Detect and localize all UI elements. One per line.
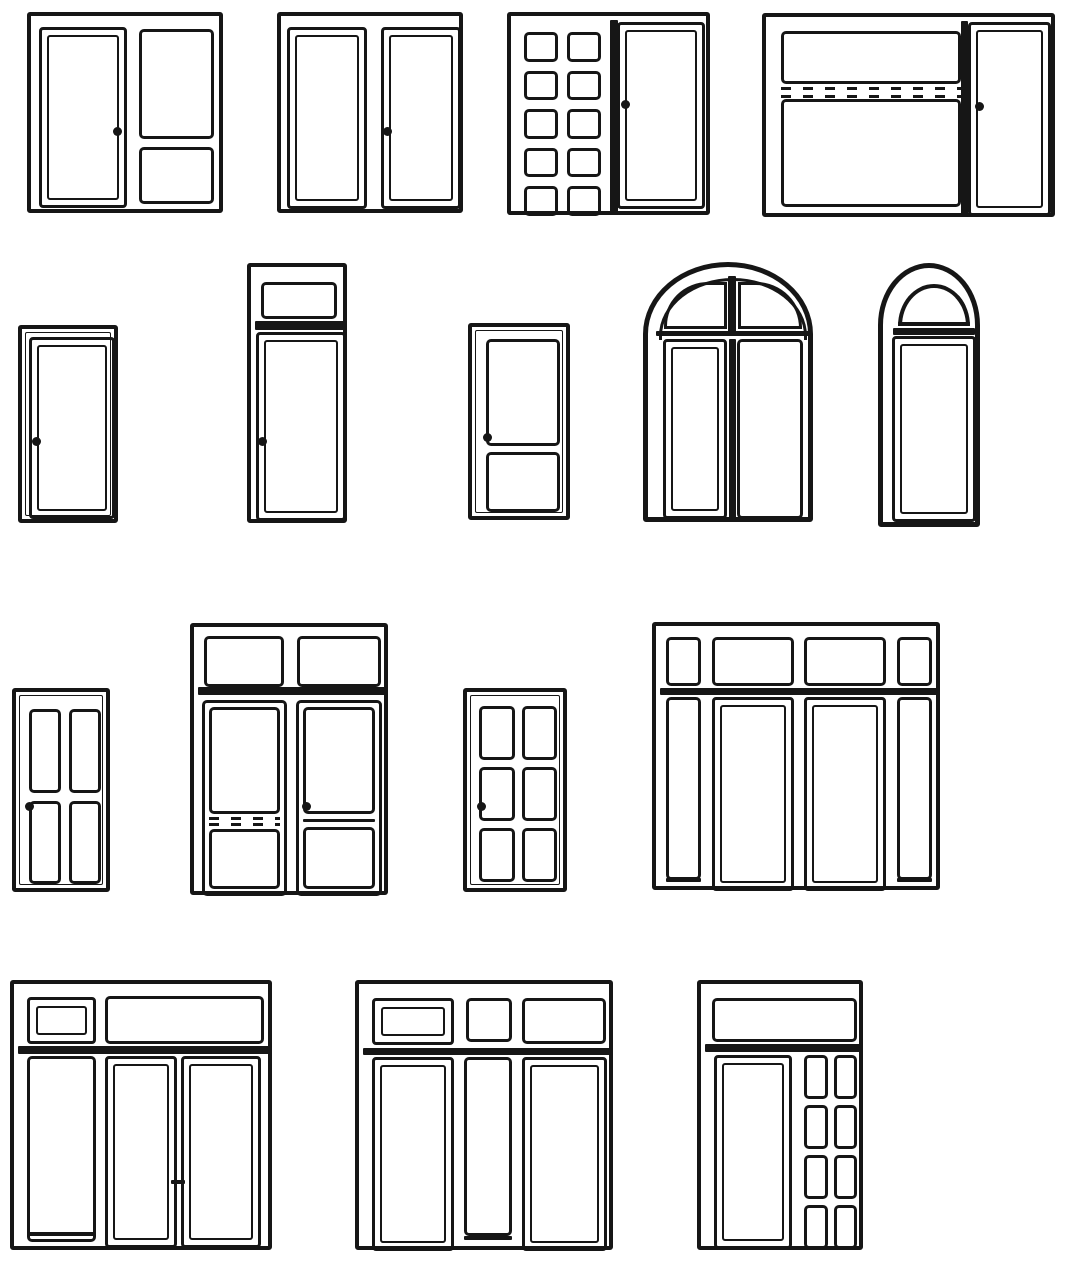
arched-window-with-fanlight-fanlight bbox=[898, 284, 970, 326]
wide-window-with-vent-strip-and-casement-vent-hatch-row bbox=[781, 95, 961, 98]
double-casement-sash bbox=[381, 27, 461, 209]
double-door-with-sidelight-and-transom-frame-bar bbox=[27, 1232, 96, 1236]
double-door-with-transom-and-vent-frame-bar bbox=[303, 819, 375, 822]
four-pane-window-pane-grid bbox=[29, 709, 101, 884]
six-pane-door bbox=[463, 688, 567, 892]
double-casement-sash-glass-pane bbox=[295, 35, 359, 201]
six-pane-door-small-pane bbox=[522, 828, 558, 882]
casement-with-transom-handle-dot bbox=[258, 437, 267, 446]
four-pane-window-small-pane bbox=[29, 801, 61, 885]
multipane-grid-and-casement bbox=[507, 12, 710, 215]
arched-double-window-frame-bar bbox=[656, 331, 810, 336]
four-pane-window-small-pane bbox=[69, 801, 101, 885]
double-door-with-transom-and-vent-vent-hatch-row bbox=[209, 823, 280, 826]
four-pane-window bbox=[12, 688, 110, 892]
door-sidelight-door-with-transoms-glass-pane bbox=[466, 998, 512, 1042]
window-wall-with-transoms-and-sidelights-sash-glass-pane bbox=[720, 705, 786, 883]
wide-window-with-vent-strip-and-casement-sash bbox=[968, 22, 1051, 216]
window-wall-with-transoms-and-sidelights-glass-pane bbox=[666, 697, 701, 880]
wide-window-with-vent-strip-and-casement bbox=[762, 13, 1055, 217]
double-door-with-transom-and-vent-glass-pane bbox=[204, 636, 284, 687]
door-with-transom-and-multipane-sidelight-small-pane bbox=[804, 1155, 828, 1199]
multipane-grid-and-casement-sash bbox=[617, 22, 705, 209]
single-casement bbox=[18, 325, 118, 523]
multipane-grid-and-casement-small-pane bbox=[567, 109, 601, 139]
single-casement-sash-glass-pane bbox=[37, 345, 107, 511]
single-casement-handle-dot bbox=[32, 437, 41, 446]
multipane-grid-and-casement-small-pane bbox=[567, 148, 601, 178]
window-wall-with-transoms-and-sidelights-glass-pane bbox=[897, 697, 932, 880]
double-casement-sash bbox=[287, 27, 367, 209]
door-with-transom-and-multipane-sidelight-small-pane bbox=[834, 1205, 858, 1249]
six-pane-door-handle-dot bbox=[477, 802, 486, 811]
window-wall-with-transoms-and-sidelights-glass-pane bbox=[804, 637, 886, 686]
wide-window-with-vent-strip-and-casement-sash-glass-pane bbox=[976, 30, 1043, 208]
double-door-with-sidelight-and-transom-sash bbox=[27, 997, 96, 1044]
multipane-grid-and-casement-small-pane bbox=[567, 186, 601, 216]
six-pane-door-small-pane bbox=[522, 706, 558, 760]
arched-double-window-frame-bar bbox=[728, 276, 736, 336]
double-door-with-transom-and-vent bbox=[190, 623, 388, 895]
double-door-with-transom-and-vent-glass-pane bbox=[303, 707, 375, 814]
window-wall-with-transoms-and-sidelights-glass-pane bbox=[712, 637, 794, 686]
double-door-with-sidelight-and-transom-glass-pane bbox=[105, 996, 264, 1044]
door-sidelight-door-with-transoms-frame-bar bbox=[363, 1048, 613, 1055]
wide-window-with-vent-strip-and-casement-handle-dot bbox=[975, 102, 984, 111]
six-pane-door-pane-grid bbox=[479, 706, 557, 882]
door-with-transom-and-multipane-sidelight-small-pane bbox=[834, 1105, 858, 1149]
casement-with-transom bbox=[247, 263, 347, 523]
double-door-with-transom-and-vent-vent-strip bbox=[209, 817, 280, 826]
double-door-with-transom-and-vent-glass-pane bbox=[209, 707, 280, 814]
double-door-with-transom-and-vent-handle-dot bbox=[302, 802, 311, 811]
multipane-grid-and-casement-pane-grid bbox=[524, 32, 601, 216]
double-casement-handle-dot bbox=[383, 127, 392, 136]
door-sidelight-door-with-transoms-glass-pane bbox=[522, 998, 606, 1044]
six-pane-door-small-pane bbox=[479, 706, 515, 760]
door-with-two-panes-handle-dot bbox=[483, 433, 492, 442]
window-types-diagram bbox=[0, 0, 1067, 1273]
double-door-with-transom-and-vent-glass-pane bbox=[303, 827, 375, 889]
casement-with-transom-sash bbox=[256, 332, 346, 521]
multipane-grid-and-casement-sash-glass-pane bbox=[625, 30, 697, 201]
multipane-grid-and-casement-small-pane bbox=[524, 32, 558, 62]
arched-window-with-fanlight-frame-bar bbox=[893, 328, 975, 335]
double-door-with-sidelight-and-transom-frame-bar bbox=[171, 1180, 185, 1184]
arched-double-window-frame-bar bbox=[729, 339, 736, 519]
door-sidelight-door-with-transoms-sash bbox=[522, 1057, 607, 1251]
double-casement bbox=[277, 12, 463, 213]
double-door-with-sidelight-and-transom-sash-glass-pane bbox=[189, 1064, 253, 1240]
door-with-transom-and-multipane-sidelight-small-pane bbox=[834, 1055, 858, 1099]
door-with-transom-and-multipane-sidelight-small-pane bbox=[804, 1055, 828, 1099]
double-door-with-sidelight-and-transom-glass-pane bbox=[27, 1056, 96, 1242]
window-wall-with-transoms-and-sidelights-glass-pane bbox=[897, 637, 932, 686]
window-wall-with-transoms-and-sidelights-sash-glass-pane bbox=[812, 705, 878, 883]
multipane-grid-and-casement-handle-dot bbox=[621, 100, 630, 109]
single-casement-sash bbox=[29, 337, 115, 519]
double-door-with-transom-and-vent-frame-bar bbox=[198, 687, 388, 695]
door-sidelight-door-with-transoms-sash-glass-pane bbox=[381, 1007, 445, 1036]
casement-with-transom-glass-pane bbox=[261, 282, 337, 319]
double-door-with-transom-and-vent-vent-hatch-row bbox=[209, 817, 280, 820]
window-wall-with-transoms-and-sidelights-sash bbox=[712, 697, 794, 891]
six-pane-door-small-pane bbox=[479, 828, 515, 882]
casement-with-two-fixed-panes bbox=[27, 12, 223, 213]
window-wall-with-transoms-and-sidelights-frame-bar bbox=[897, 878, 932, 882]
door-with-transom-and-multipane-sidelight-small-pane bbox=[804, 1205, 828, 1249]
four-pane-window-small-pane bbox=[69, 709, 101, 793]
double-door-with-sidelight-and-transom bbox=[10, 980, 272, 1250]
double-door-with-sidelight-and-transom-sash bbox=[181, 1056, 261, 1248]
door-with-transom-and-multipane-sidelight bbox=[697, 980, 863, 1250]
door-with-two-panes-glass-pane bbox=[486, 339, 560, 446]
multipane-grid-and-casement-small-pane bbox=[524, 186, 558, 216]
door-with-transom-and-multipane-sidelight-small-pane bbox=[834, 1155, 858, 1199]
six-pane-door-small-pane bbox=[479, 767, 515, 821]
casement-with-two-fixed-panes-handle-dot bbox=[113, 127, 122, 136]
multipane-grid-and-casement-small-pane bbox=[524, 148, 558, 178]
door-sidelight-door-with-transoms-glass-pane bbox=[464, 1057, 512, 1236]
arched-double-window-sash-glass-pane bbox=[671, 347, 719, 511]
double-door-with-sidelight-and-transom-frame-bar bbox=[18, 1046, 272, 1054]
window-wall-with-transoms-and-sidelights bbox=[652, 622, 940, 890]
door-sidelight-door-with-transoms-frame-bar bbox=[464, 1236, 512, 1240]
double-casement-sash-glass-pane bbox=[389, 35, 453, 201]
wide-window-with-vent-strip-and-casement-glass-pane bbox=[781, 99, 961, 207]
six-pane-door-small-pane bbox=[522, 767, 558, 821]
arched-window-with-fanlight bbox=[878, 263, 980, 527]
casement-with-two-fixed-panes-glass-pane bbox=[139, 147, 214, 204]
door-with-transom-and-multipane-sidelight-sash-glass-pane bbox=[722, 1063, 784, 1241]
double-door-with-sidelight-and-transom-sash bbox=[105, 1056, 177, 1248]
door-sidelight-door-with-transoms-sash-glass-pane bbox=[530, 1065, 599, 1243]
door-with-transom-and-multipane-sidelight-pane-grid bbox=[804, 1055, 857, 1249]
four-pane-window-handle-dot bbox=[25, 802, 34, 811]
double-door-with-transom-and-vent-glass-pane bbox=[209, 829, 280, 889]
door-with-transom-and-multipane-sidelight-sash bbox=[714, 1055, 792, 1249]
door-sidelight-door-with-transoms-sash-glass-pane bbox=[380, 1065, 446, 1243]
casement-with-two-fixed-panes-glass-pane bbox=[139, 29, 214, 139]
casement-with-transom-frame-bar bbox=[255, 321, 347, 330]
arched-double-window bbox=[643, 262, 813, 522]
double-door-with-sidelight-and-transom-sash-glass-pane bbox=[36, 1006, 87, 1035]
casement-with-two-fixed-panes-sash-glass-pane bbox=[47, 35, 119, 200]
wide-window-with-vent-strip-and-casement-vent-strip bbox=[781, 87, 961, 98]
four-pane-window-small-pane bbox=[29, 709, 61, 793]
arched-window-with-fanlight-sash-glass-pane bbox=[900, 344, 968, 514]
double-door-with-sidelight-and-transom-sash-glass-pane bbox=[113, 1064, 169, 1240]
window-wall-with-transoms-and-sidelights-frame-bar bbox=[666, 878, 701, 882]
multipane-grid-and-casement-small-pane bbox=[567, 71, 601, 101]
door-sidelight-door-with-transoms-sash bbox=[372, 1057, 454, 1251]
wide-window-with-vent-strip-and-casement-frame-bar bbox=[961, 21, 968, 217]
arched-window-with-fanlight-sash bbox=[892, 336, 976, 522]
multipane-grid-and-casement-small-pane bbox=[524, 71, 558, 101]
double-door-with-transom-and-vent-glass-pane bbox=[297, 636, 381, 687]
arched-double-window-glass-pane bbox=[737, 339, 803, 519]
door-sidelight-door-with-transoms bbox=[355, 980, 613, 1250]
multipane-grid-and-casement-small-pane bbox=[567, 32, 601, 62]
window-wall-with-transoms-and-sidelights-frame-bar bbox=[660, 688, 940, 695]
door-with-two-panes bbox=[468, 323, 570, 520]
arched-double-window-sash bbox=[663, 339, 727, 519]
door-with-transom-and-multipane-sidelight-glass-pane bbox=[712, 998, 857, 1042]
wide-window-with-vent-strip-and-casement-vent-hatch-row bbox=[781, 87, 961, 90]
arched-double-window-glass-pane bbox=[738, 282, 802, 329]
door-with-two-panes-glass-pane bbox=[486, 452, 560, 512]
door-with-transom-and-multipane-sidelight-small-pane bbox=[804, 1105, 828, 1149]
window-wall-with-transoms-and-sidelights-sash bbox=[804, 697, 886, 891]
window-wall-with-transoms-and-sidelights-glass-pane bbox=[666, 637, 701, 686]
door-sidelight-door-with-transoms-sash bbox=[372, 998, 454, 1045]
arched-double-window-glass-pane bbox=[664, 282, 727, 329]
door-with-transom-and-multipane-sidelight-frame-bar bbox=[705, 1044, 863, 1052]
casement-with-transom-sash-glass-pane bbox=[264, 340, 338, 513]
wide-window-with-vent-strip-and-casement-glass-pane bbox=[781, 31, 961, 84]
casement-with-two-fixed-panes-sash bbox=[39, 27, 127, 208]
multipane-grid-and-casement-small-pane bbox=[524, 109, 558, 139]
